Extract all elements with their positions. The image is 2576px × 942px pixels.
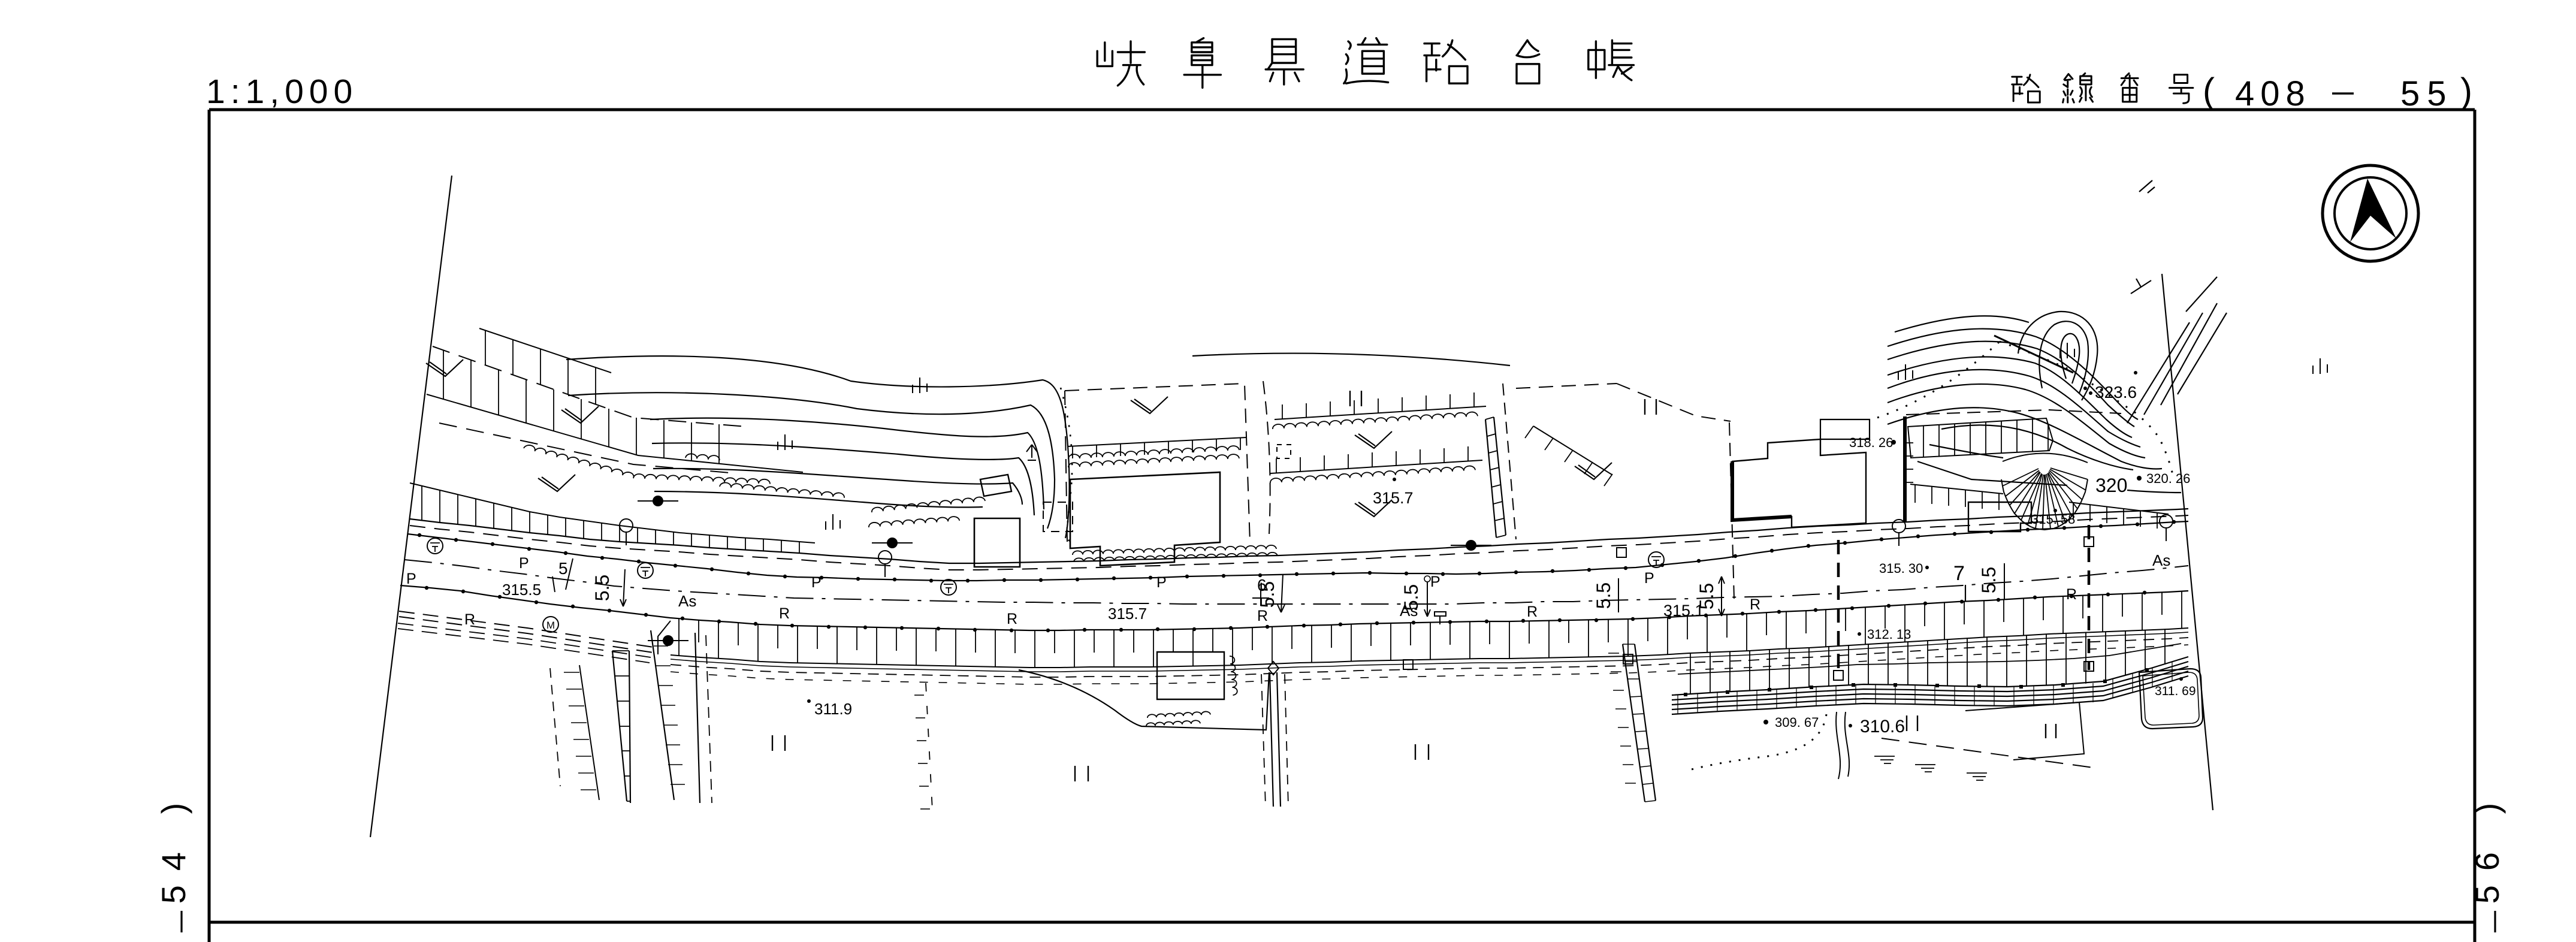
svg-text:As: As [678,592,696,610]
svg-text:P: P [1156,574,1167,591]
svg-text:315.7: 315.7 [1108,605,1147,623]
svg-text:P: P [1644,570,1654,587]
svg-text:320. 26: 320. 26 [2146,471,2190,486]
svg-text:5.5: 5.5 [1696,583,1717,609]
svg-text:R: R [1007,611,1017,627]
svg-text:408: 408 [2235,74,2311,113]
svg-text:5.5: 5.5 [1400,584,1422,611]
svg-text:55: 55 [2400,74,2454,113]
svg-text:R: R [2066,586,2077,603]
svg-text:310.6: 310.6 [1860,717,1905,736]
svg-text:R: R [1257,608,1268,624]
svg-text:P: P [1430,573,1440,590]
svg-text:5.5: 5.5 [1257,581,1278,608]
svg-text:M: M [546,620,555,631]
svg-text:311. 69: 311. 69 [2155,684,2196,698]
svg-text:R: R [1527,603,1538,620]
svg-text:318. 26: 318. 26 [1849,435,1893,450]
svg-text:323.6: 323.6 [2095,383,2137,401]
svg-text:5.5: 5.5 [591,575,613,601]
svg-text:7: 7 [1953,562,1965,585]
svg-text:315. 58: 315. 58 [2031,512,2075,527]
svg-text:P: P [519,555,529,572]
svg-text:P: P [406,570,416,587]
svg-text:312. 13: 312. 13 [1867,627,1911,642]
svg-text:5: 5 [558,559,568,578]
svg-text:R: R [779,605,790,622]
svg-text:R: R [464,611,475,628]
svg-text:315. 30: 315. 30 [1879,561,1923,576]
svg-text:56 ): 56 ) [2468,789,2506,904]
svg-text:309. 67: 309. 67 [1775,715,1819,730]
svg-text:311.9: 311.9 [814,700,852,718]
svg-text:5.5: 5.5 [1593,582,1614,609]
svg-text:): ) [2460,71,2472,111]
svg-text:320: 320 [2095,475,2127,496]
svg-text:5.5: 5.5 [1978,567,2000,593]
svg-text:R: R [1750,596,1760,613]
svg-text:315.5: 315.5 [502,581,541,599]
svg-text:(: ( [2203,71,2215,111]
svg-text:As: As [2152,551,2170,569]
svg-text:54 ): 54 ) [155,789,192,904]
svg-text:1:1,000: 1:1,000 [206,73,358,111]
svg-text:P: P [811,574,822,591]
svg-text:315.7: 315.7 [1373,489,1414,507]
